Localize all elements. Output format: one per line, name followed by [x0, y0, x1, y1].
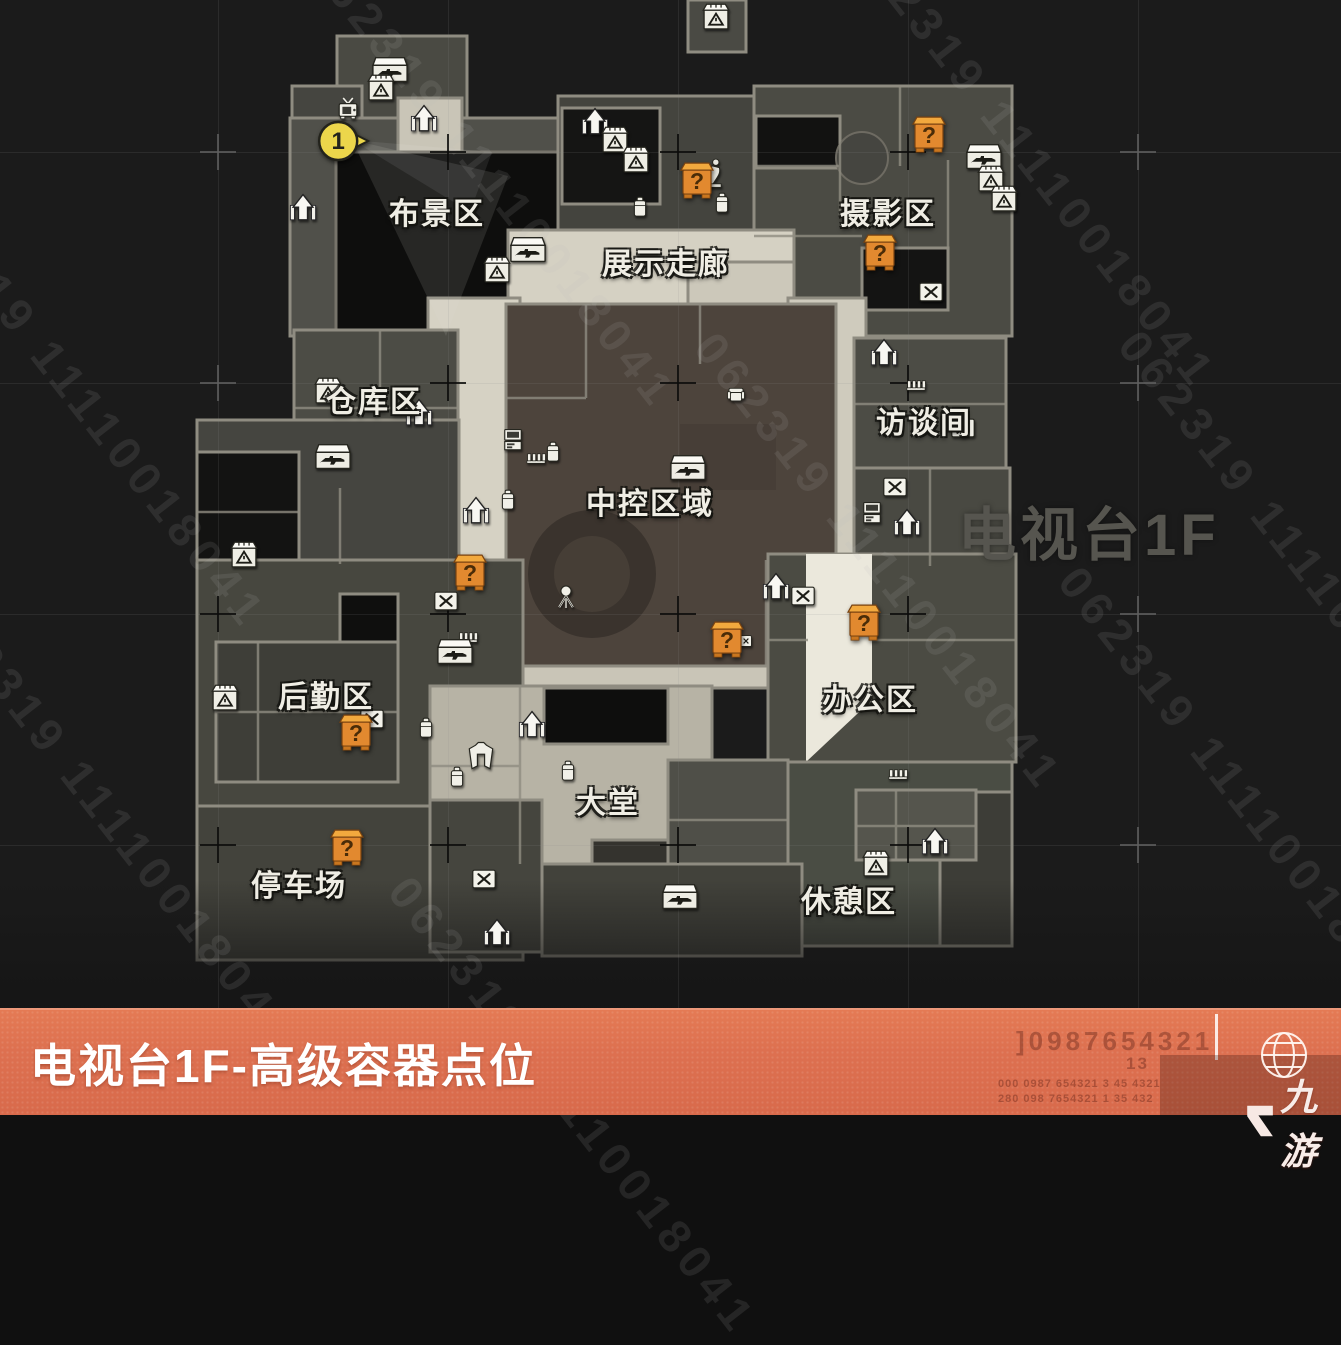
- question-container-marker[interactable]: [449, 550, 491, 598]
- question-container-marker[interactable]: [706, 617, 748, 665]
- question-container-marker[interactable]: [908, 112, 950, 160]
- question-container-marker[interactable]: [859, 230, 901, 278]
- jiuyou-logo[interactable]: 九游: [1244, 1067, 1341, 1175]
- svg-text:1: 1: [332, 128, 345, 155]
- jiuyou-logo-text: 九游: [1280, 1067, 1341, 1175]
- question-container-marker[interactable]: [676, 158, 718, 206]
- page-background: ?: [0, 0, 1341, 1113]
- question-container-marker[interactable]: [335, 710, 377, 758]
- ghost-number-big: ]0987654321: [1016, 1026, 1213, 1057]
- question-container-marker[interactable]: [843, 600, 885, 648]
- footer-divider: [1215, 1014, 1218, 1060]
- ghost-number-mid: 13: [1126, 1054, 1149, 1074]
- ghost-number-line1: 000 0987 654321 3 45 4321: [998, 1078, 1161, 1090]
- jiuyou-logo-mark: [1244, 1100, 1276, 1142]
- footer-title: 电视台1F-高级容器点位: [30, 1030, 537, 1096]
- ghost-number-line2: 280 098 7654321 1 35 432: [998, 1093, 1154, 1105]
- question-container-marker[interactable]: [326, 825, 368, 873]
- numbered-marker-1[interactable]: 1: [314, 117, 384, 165]
- footer-bar: 电视台1F-高级容器点位 ]0987654321 13 000 0987 654…: [0, 1008, 1341, 1115]
- floorplan: [0, 0, 1341, 1113]
